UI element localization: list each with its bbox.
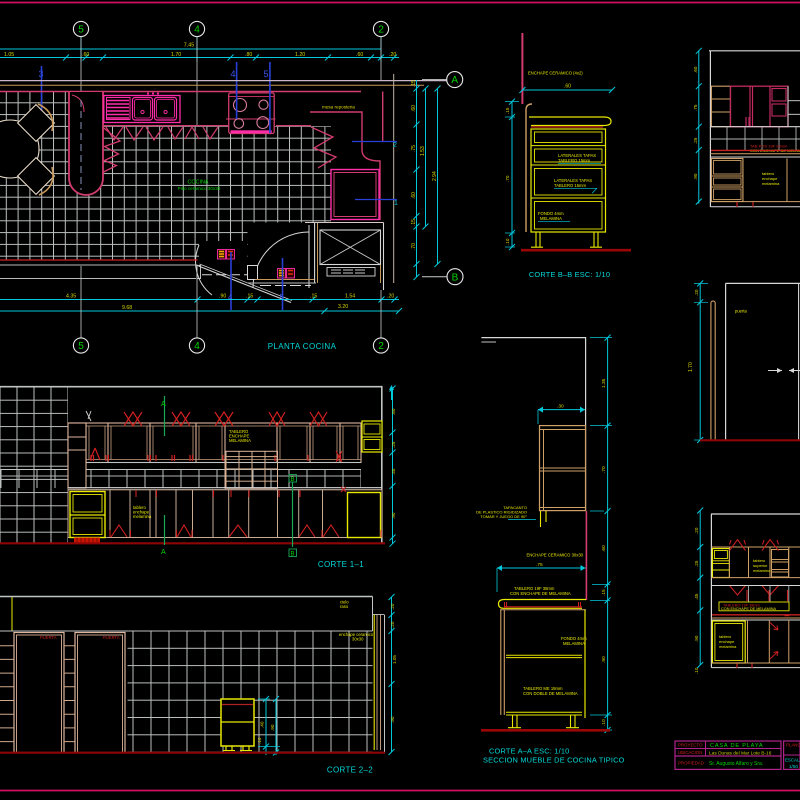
svg-text:.90: .90 [270, 724, 275, 731]
svg-text:4.35: 4.35 [66, 294, 76, 300]
svg-text:CASA DE PLAYA: CASA DE PLAYA [710, 743, 763, 749]
svg-text:4: 4 [228, 293, 233, 302]
svg-text:.75: .75 [411, 145, 417, 152]
svg-text:.60: .60 [693, 66, 698, 73]
svg-text:1/50: 1/50 [789, 764, 798, 769]
svg-text:B: B [452, 272, 459, 283]
svg-text:.90: .90 [601, 656, 607, 663]
svg-text:raso: raso [340, 604, 349, 609]
svg-text:PLANO: PLANO [786, 743, 800, 748]
svg-text:1.54: 1.54 [345, 294, 355, 300]
svg-text:CORTE 2–2: CORTE 2–2 [327, 766, 373, 775]
svg-text:MELAMINA: MELAMINA [540, 216, 562, 221]
svg-text:5: 5 [280, 293, 285, 302]
svg-text:CORTE B–B ESC: 1/10: CORTE B–B ESC: 1/10 [529, 270, 610, 279]
svg-text:Sr. Augusto Alfaro y Sra.: Sr. Augusto Alfaro y Sra. [709, 761, 763, 767]
svg-text:.40: .40 [260, 721, 265, 728]
svg-text:A: A [451, 75, 458, 86]
svg-text:.15: .15 [505, 107, 510, 114]
svg-text:MELAMINA: MELAMINA [229, 438, 251, 443]
svg-text:4: 4 [194, 341, 200, 352]
svg-text:.25: .25 [391, 441, 396, 448]
svg-text:CORTE 1–1: CORTE 1–1 [318, 560, 364, 569]
svg-text:Piso ceramico 30x30: Piso ceramico 30x30 [178, 186, 221, 191]
svg-text:.20: .20 [389, 52, 396, 58]
svg-text:.20: .20 [694, 289, 699, 296]
svg-text:COCINA: COCINA [188, 180, 209, 186]
svg-text:.25: .25 [694, 560, 699, 567]
svg-text:.90: .90 [390, 716, 395, 723]
svg-text:UBICACION: UBICACION [678, 750, 702, 755]
svg-text:mesa reposteria: mesa reposteria [322, 105, 355, 110]
svg-text:ESCALA: ESCALA [785, 758, 800, 763]
svg-text:.15: .15 [601, 589, 607, 596]
svg-text:ENCHAPE CERAMICO (4x2): ENCHAPE CERAMICO (4x2) [528, 71, 583, 76]
svg-text:1: 1 [394, 200, 398, 207]
svg-text:PROPIEDAD: PROPIEDAD [678, 760, 704, 765]
svg-text:.70: .70 [601, 466, 607, 473]
svg-text:B: B [291, 477, 295, 483]
svg-text:.60: .60 [391, 408, 396, 415]
svg-text:.10: .10 [694, 667, 699, 674]
svg-text:ENCHAPE CERAMICO 30x30: ENCHAPE CERAMICO 30x30 [526, 553, 583, 558]
svg-text:.45: .45 [694, 593, 699, 600]
svg-text:.90: .90 [693, 173, 698, 180]
svg-text:1.05: 1.05 [392, 655, 397, 664]
svg-text:.20: .20 [694, 527, 699, 534]
svg-text:2: 2 [378, 25, 384, 36]
svg-text:5: 5 [78, 341, 84, 352]
svg-text:4: 4 [194, 25, 200, 36]
svg-text:.10: .10 [257, 737, 262, 744]
svg-text:2.94: 2.94 [432, 171, 438, 181]
svg-text:2: 2 [393, 142, 397, 149]
svg-text:melamina: melamina [753, 568, 771, 573]
svg-text:.10: .10 [601, 719, 607, 726]
svg-text:PROYECTO: PROYECTO [678, 743, 703, 748]
svg-text:CON DOBLE DE MELAMINA: CON DOBLE DE MELAMINA [523, 691, 578, 696]
svg-text:2: 2 [378, 341, 384, 352]
svg-text:Las Dunas del Mar Lote B-16: Las Dunas del Mar Lote B-16 [709, 750, 772, 756]
svg-text:.75: .75 [693, 104, 698, 111]
svg-text:TABLERO 15mm: TABLERO 15mm [558, 158, 591, 163]
svg-text:CON ENCHAPE DE MELAMINA: CON ENCHAPE DE MELAMINA [510, 591, 571, 596]
svg-text:PUERTA: PUERTA [40, 635, 57, 640]
svg-text:5: 5 [78, 25, 84, 36]
svg-text:puerta: puerta [735, 309, 748, 314]
svg-text:B: B [291, 551, 295, 557]
svg-text:PUERTA: PUERTA [103, 635, 120, 640]
svg-text:.45: .45 [391, 468, 396, 475]
svg-text:9.68: 9.68 [122, 305, 132, 311]
svg-text:.20: .20 [390, 621, 395, 628]
svg-text:7.45: 7.45 [184, 43, 195, 49]
svg-text:1.05: 1.05 [4, 52, 14, 58]
svg-text:.60: .60 [411, 192, 417, 199]
svg-text:1.70: 1.70 [171, 52, 181, 58]
svg-text:TOMAR Y JUEGO DE 90°: TOMAR Y JUEGO DE 90° [480, 514, 527, 519]
svg-text:1.20: 1.20 [295, 52, 305, 58]
svg-text:.10: .10 [505, 238, 510, 245]
svg-text:.80: .80 [245, 52, 252, 58]
svg-text:.15: .15 [411, 80, 417, 87]
svg-text:.90: .90 [391, 512, 396, 519]
svg-text:.60: .60 [411, 105, 417, 112]
svg-text:3.20: 3.20 [338, 304, 348, 310]
svg-text:.20: .20 [387, 294, 394, 300]
svg-text:SECCION MUEBLE DE COCINA TIPIC: SECCION MUEBLE DE COCINA TIPICO [483, 756, 625, 765]
svg-text:.15: .15 [310, 294, 317, 300]
svg-text:.20: .20 [390, 603, 395, 610]
svg-text:.90: .90 [694, 635, 699, 642]
svg-text:4: 4 [230, 69, 235, 79]
svg-text:.60: .60 [564, 84, 571, 90]
svg-text:.15: .15 [411, 219, 417, 226]
svg-text:MELAMINA: MELAMINA [563, 641, 585, 646]
svg-text:.15: .15 [246, 294, 253, 300]
svg-text:.75: .75 [536, 562, 543, 568]
svg-text:30x30: 30x30 [352, 637, 364, 642]
svg-text:5: 5 [263, 69, 268, 79]
svg-text:1.35: 1.35 [601, 378, 607, 388]
svg-text:1.53: 1.53 [420, 146, 426, 156]
svg-text:melamina: melamina [762, 181, 780, 186]
svg-text:.60: .60 [601, 545, 607, 552]
svg-text:.60: .60 [356, 52, 363, 58]
svg-text:.90: .90 [219, 294, 226, 300]
svg-text:.30: .30 [557, 404, 564, 410]
svg-text:melamina: melamina [133, 514, 152, 519]
svg-text:A: A [161, 401, 166, 408]
svg-text:1.70: 1.70 [688, 362, 694, 372]
svg-text:melamina: melamina [719, 644, 737, 649]
svg-text:CON ENCHAPE DE MELAMINA: CON ENCHAPE DE MELAMINA [721, 607, 777, 611]
svg-text:.70: .70 [411, 243, 417, 250]
svg-text:.60: .60 [82, 52, 89, 58]
svg-text:.25: .25 [693, 137, 698, 144]
svg-text:TABLERO 15mm: TABLERO 15mm [554, 183, 587, 188]
svg-text:A: A [161, 549, 166, 556]
svg-text:PLANTA COCINA: PLANTA COCINA [268, 342, 337, 351]
svg-text:CORTE A–A ESC: 1/10: CORTE A–A ESC: 1/10 [489, 747, 569, 756]
svg-text:.70: .70 [505, 175, 510, 182]
